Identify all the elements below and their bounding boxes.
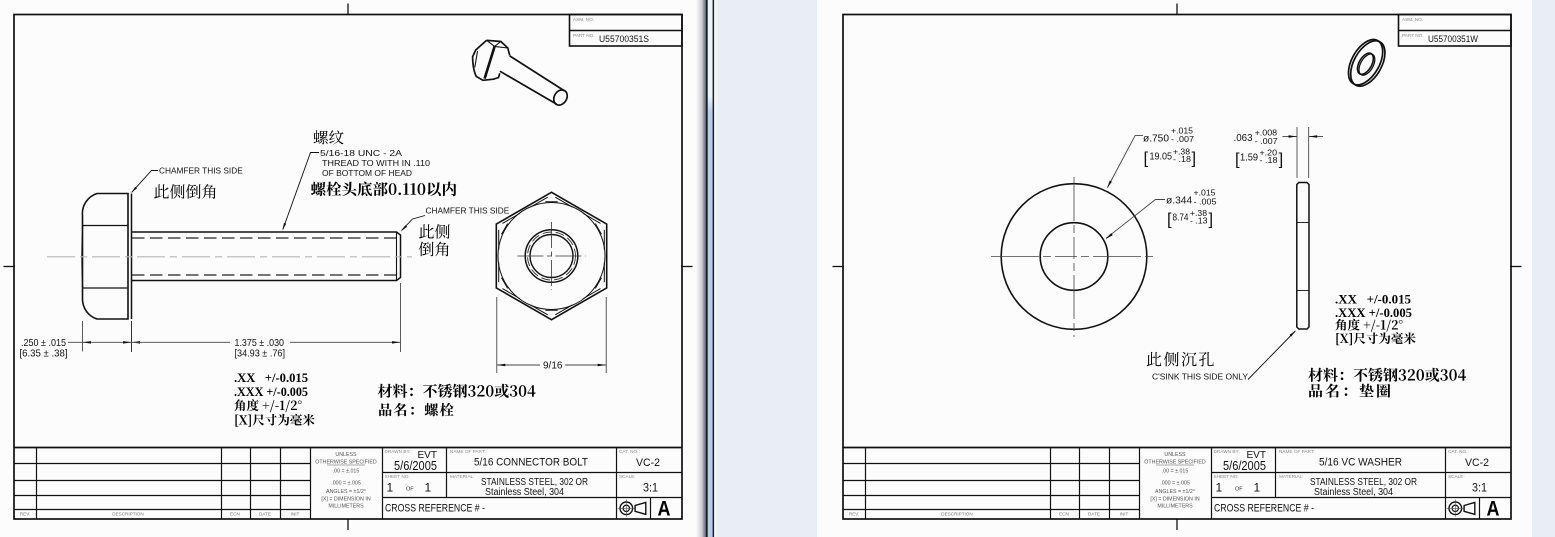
svg-text:1: 1 bbox=[1254, 481, 1261, 495]
svg-text:VC-2: VC-2 bbox=[636, 457, 660, 469]
svg-text:CROSS REFERENCE # -: CROSS REFERENCE # - bbox=[1214, 503, 1314, 515]
svg-text:ANGLES = ±1/2°: ANGLES = ±1/2° bbox=[326, 489, 366, 495]
svg-text:.000 = ±.005: .000 = ±.005 bbox=[331, 481, 361, 487]
svg-text:5/16-18 UNC - 2A: 5/16-18 UNC - 2A bbox=[320, 148, 403, 158]
svg-text:[X] = DIMENSION IN: [X] = DIMENSION IN bbox=[321, 497, 370, 503]
svg-text:NAME OF PART:: NAME OF PART: bbox=[450, 449, 486, 454]
svg-text:CHAMFER THIS SIDE: CHAMFER THIS SIDE bbox=[159, 166, 243, 176]
svg-text:SCALE:: SCALE: bbox=[1448, 474, 1465, 479]
svg-text:- .007: - .007 bbox=[1255, 137, 1278, 146]
svg-text:5/16 CONNECTOR BOLT: 5/16 CONNECTOR BOLT bbox=[474, 457, 588, 469]
svg-text:.XXX +/-0.005: .XXX +/-0.005 bbox=[234, 385, 308, 399]
svg-text:3:1: 3:1 bbox=[643, 481, 658, 495]
svg-text:.XX +/-0.015: .XX +/-0.015 bbox=[1335, 293, 1411, 307]
svg-text:MATERIAL:: MATERIAL: bbox=[450, 474, 474, 479]
svg-text:.000 = ±.005: .000 = ±.005 bbox=[1160, 481, 1190, 487]
svg-text:3:1: 3:1 bbox=[1472, 481, 1487, 495]
svg-text:UNLESS: UNLESS bbox=[335, 452, 357, 458]
svg-text:A: A bbox=[1487, 497, 1500, 521]
svg-text:ECN: ECN bbox=[1059, 512, 1069, 517]
svg-text:9/16: 9/16 bbox=[543, 361, 563, 372]
svg-text:VC-2: VC-2 bbox=[1465, 457, 1489, 469]
svg-text:REV.: REV. bbox=[849, 512, 859, 517]
svg-text:DESCRIPTION: DESCRIPTION bbox=[941, 512, 972, 517]
svg-text:1: 1 bbox=[1216, 481, 1223, 495]
svg-text:- .007: - .007 bbox=[1171, 135, 1194, 144]
svg-text:[X] = DIMENSION IN: [X] = DIMENSION IN bbox=[1150, 497, 1199, 503]
svg-text:19.05: 19.05 bbox=[1150, 151, 1173, 163]
svg-text:]: ] bbox=[1279, 151, 1284, 169]
svg-text:- .18: - .18 bbox=[1173, 155, 1191, 164]
svg-text:5/6/2005: 5/6/2005 bbox=[1223, 459, 1266, 473]
svg-text:.XX +/-0.015: .XX +/-0.015 bbox=[234, 371, 308, 385]
svg-text:OF BOTTOM OF HEAD: OF BOTTOM OF HEAD bbox=[322, 168, 412, 178]
svg-text:INIT: INIT bbox=[1120, 512, 1129, 517]
svg-text:A: A bbox=[658, 497, 671, 521]
svg-text:1.375 ± .030: 1.375 ± .030 bbox=[235, 338, 285, 349]
svg-text:.00 = ±.015: .00 = ±.015 bbox=[1162, 469, 1189, 475]
svg-text:ECN: ECN bbox=[230, 512, 240, 517]
svg-text:ø.750: ø.750 bbox=[1143, 132, 1169, 144]
svg-text:REV.: REV. bbox=[20, 512, 30, 517]
svg-text:MILLIMETERS: MILLIMETERS bbox=[328, 504, 364, 510]
svg-text:5/16 VC WASHER: 5/16 VC WASHER bbox=[1319, 457, 1402, 469]
svg-text:]: ] bbox=[1209, 211, 1214, 229]
svg-text:CROSS REFERENCE # -: CROSS REFERENCE # - bbox=[385, 503, 485, 515]
svg-text:1: 1 bbox=[425, 481, 432, 495]
svg-text:ASM. NO.: ASM. NO. bbox=[573, 17, 594, 22]
svg-text:[: [ bbox=[1167, 211, 1172, 229]
svg-text:DRAWN BY:: DRAWN BY: bbox=[1214, 449, 1240, 454]
svg-text:1: 1 bbox=[387, 481, 394, 495]
svg-text:C'SINK THIS SIDE ONLY: C'SINK THIS SIDE ONLY bbox=[1152, 372, 1248, 382]
svg-text:ø.344: ø.344 bbox=[1166, 194, 1192, 206]
svg-text:THREAD TO WITH IN .110: THREAD TO WITH IN .110 bbox=[322, 158, 430, 168]
svg-text:U55700351W: U55700351W bbox=[1428, 34, 1478, 45]
svg-text:PART NO.: PART NO. bbox=[1402, 33, 1424, 38]
svg-text:.250 ± .015: .250 ± .015 bbox=[21, 338, 66, 349]
svg-text:[: [ bbox=[1144, 150, 1149, 168]
svg-text:ASM. NO.: ASM. NO. bbox=[1402, 17, 1423, 22]
svg-text:Stainless Steel, 304: Stainless Steel, 304 bbox=[485, 487, 564, 498]
svg-text:[6.35 ± .38]: [6.35 ± .38] bbox=[20, 349, 68, 360]
svg-text:CAT. NO.:: CAT. NO.: bbox=[1448, 449, 1469, 454]
svg-text:MILLIMETERS: MILLIMETERS bbox=[1157, 504, 1193, 510]
svg-text:[34.93 ± .76]: [34.93 ± .76] bbox=[235, 349, 286, 360]
svg-text:SHEET NO:: SHEET NO: bbox=[385, 474, 410, 479]
svg-text:1.59: 1.59 bbox=[1240, 152, 1258, 164]
svg-text:- .13: - .13 bbox=[1190, 217, 1208, 226]
svg-text:DRAWN BY:: DRAWN BY: bbox=[385, 449, 411, 454]
svg-text:.00 = ±.015: .00 = ±.015 bbox=[333, 469, 360, 475]
svg-text:+.015: +.015 bbox=[1194, 189, 1216, 198]
svg-text:DATE: DATE bbox=[1088, 512, 1100, 517]
svg-text:]: ] bbox=[1192, 150, 1197, 168]
svg-text:PART NO.: PART NO. bbox=[573, 33, 595, 38]
svg-text:5/6/2005: 5/6/2005 bbox=[394, 459, 437, 473]
svg-text:DATE: DATE bbox=[259, 512, 271, 517]
svg-text:CHAMFER THIS SIDE: CHAMFER THIS SIDE bbox=[426, 206, 510, 216]
svg-text:.063: .063 bbox=[1234, 132, 1253, 144]
svg-text:OTHERWISE SPECIFIED: OTHERWISE SPECIFIED bbox=[1144, 460, 1206, 466]
svg-text:+.015: +.015 bbox=[1171, 126, 1193, 135]
svg-text:- .18: - .18 bbox=[1260, 156, 1278, 165]
svg-text:ANGLES = ±1/2°: ANGLES = ±1/2° bbox=[1155, 489, 1195, 495]
svg-text:MATERIAL:: MATERIAL: bbox=[1279, 474, 1303, 479]
svg-text:UNLESS: UNLESS bbox=[1164, 452, 1186, 458]
svg-text:NAME OF PART:: NAME OF PART: bbox=[1279, 449, 1315, 454]
svg-text:- .005: - .005 bbox=[1194, 198, 1217, 207]
svg-text:CAT. NO.:: CAT. NO.: bbox=[619, 449, 640, 454]
svg-text:DESCRIPTION: DESCRIPTION bbox=[112, 512, 143, 517]
svg-text:8.74: 8.74 bbox=[1173, 212, 1189, 224]
svg-text:SCALE:: SCALE: bbox=[619, 474, 636, 479]
svg-text:SHEET NO:: SHEET NO: bbox=[1214, 474, 1239, 479]
svg-text:OF: OF bbox=[406, 487, 414, 493]
svg-text:Stainless Steel, 304: Stainless Steel, 304 bbox=[1314, 487, 1393, 498]
svg-text:.XXX +/-0.005: .XXX +/-0.005 bbox=[1335, 306, 1412, 320]
svg-text:OF: OF bbox=[1235, 487, 1243, 493]
svg-text:OTHERWISE SPECIFIED: OTHERWISE SPECIFIED bbox=[315, 460, 377, 466]
svg-text:INIT: INIT bbox=[291, 512, 300, 517]
svg-text:U55700351S: U55700351S bbox=[599, 34, 649, 45]
